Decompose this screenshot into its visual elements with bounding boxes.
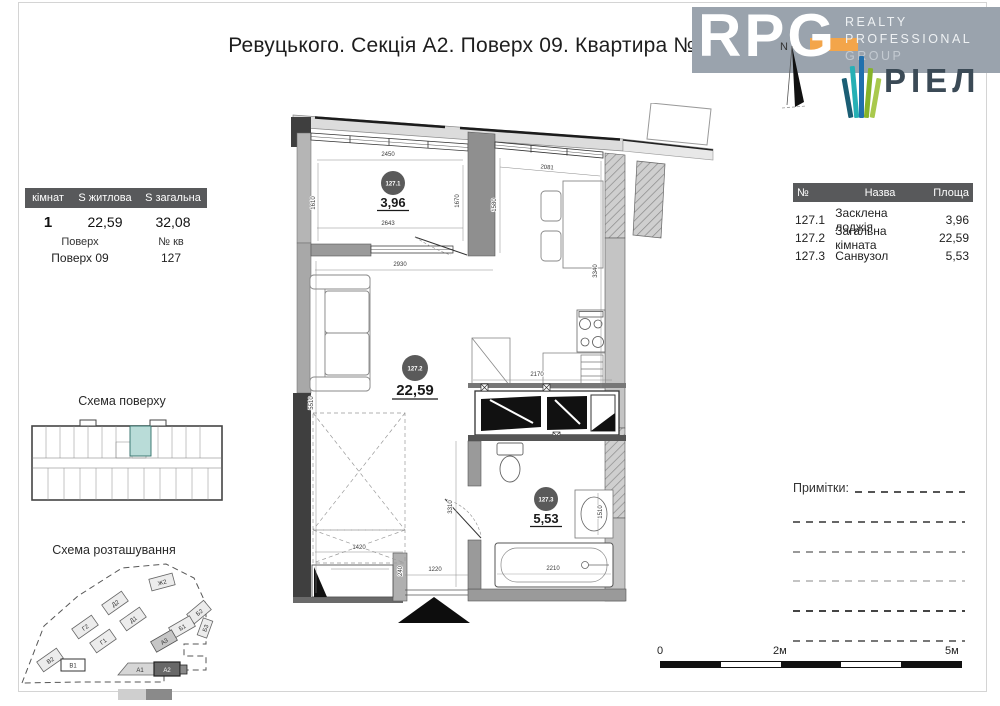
room-badge-127-1: 127.1 3,96 [377,171,409,211]
svg-text:1670: 1670 [455,194,461,208]
wardrobe-projection [313,413,405,563]
svg-text:1220: 1220 [428,567,442,573]
summary-rooms-value: 1 [25,214,71,231]
svg-text:1510: 1510 [598,505,604,519]
notes-line [793,640,965,642]
rooms-table: № Назва Площа 127.1 Засклена лоджія 3,96… [793,183,973,265]
sofa [310,275,370,391]
svg-text:3340: 3340 [593,264,599,278]
apt-number-value: 127 [135,251,207,265]
left-wall [291,117,311,601]
svg-text:1580: 1580 [492,198,498,212]
kitchen-counter [543,353,605,388]
floor-scheme-map [28,412,226,508]
floorplan-sheet: Ревуцького. Секція А2. Поверх 09. Кварти… [0,0,1000,706]
main-floor-plan: 2450 1610 1670 2643 1580 2081 2930 3340 … [285,103,717,645]
scale-label-5m: 5м [945,645,959,657]
svg-text:127.1: 127.1 [385,182,401,188]
highlighted-building-a2: А2 [154,662,187,676]
svg-text:3310: 3310 [448,500,454,514]
site-scheme-map: Ж2 Д2 Д1 Б2 Б1 Б3 Г2 Г1 А3 В2 В1 А1 А2 [14,558,216,690]
svg-text:127.2: 127.2 [407,367,423,373]
sink-icon [575,490,613,538]
entrance-arrow [398,597,470,623]
scale-bar [660,661,962,668]
summary-living-area-value: 22,59 [71,214,139,230]
room-badge-127-3: 127.3 5,53 [530,487,562,527]
legend-strip-dark [146,689,172,700]
svg-text:3,96: 3,96 [380,195,405,210]
summary-header-living-area: S житлова [71,192,139,204]
svg-text:В1: В1 [69,664,77,670]
svg-text:1610: 1610 [311,196,317,210]
notes-line [793,610,965,612]
svg-text:2081: 2081 [540,164,554,171]
svg-text:2210: 2210 [546,566,560,572]
neighbour-wall [633,161,665,238]
kitchen-cabinet [472,338,510,386]
room-badge-127-2: 127.2 22,59 [392,355,438,399]
apt-number-label: № кв [135,236,207,248]
svg-text:2643: 2643 [381,221,395,227]
pillar [468,132,495,256]
compass-n-label: N [780,41,788,53]
site-scheme-title: Схема розташування [14,543,214,557]
summary-total-area-value: 32,08 [139,214,207,230]
summary-header-rooms: кімнат [25,192,71,204]
svg-text:5,53: 5,53 [533,511,558,526]
svg-text:127.3: 127.3 [538,498,554,504]
scale-label-0: 0 [657,645,663,657]
logo-word-professional: PROFESSIONAL [845,31,972,48]
bathroom [445,441,613,589]
svg-text:А2: А2 [163,668,171,674]
table-row: 127.2 Загальна кімната 22,59 [793,229,973,247]
svg-text:А1: А1 [136,668,144,674]
floor-scheme-title: Схема поверху [22,394,222,408]
notes-line [793,580,965,582]
rooms-header-area: Площа [926,187,974,199]
loggia-divider-wall [311,237,467,256]
toilet-icon [497,443,523,482]
notes-label: Примітки: [793,481,849,495]
scale-label-2m: 2м [773,645,787,657]
table-row: 127.3 Санвузол 5,53 [793,247,973,265]
legend-strip-light [118,689,146,700]
notes-line [855,491,965,493]
north-arrow-icon: N [762,36,818,114]
builtin-wardrobe [468,383,626,441]
riel-logo-text: РІЕЛ [884,62,980,100]
floor-apartment-meta: Поверх № кв Поверх 09 127 [25,236,207,265]
svg-text:1420: 1420 [352,545,366,551]
logo-word-realty: REALTY [845,14,972,31]
highlighted-apartment-cell [130,426,151,456]
notes-line [793,551,965,553]
svg-text:2450: 2450 [381,152,395,158]
floor-label: Поверх [25,236,135,248]
svg-text:22,59: 22,59 [396,382,434,399]
bathtub-icon [495,543,613,587]
apartment-summary-table: кімнат S житлова S загальна 1 22,59 32,0… [25,188,207,236]
neighbour-balcony [647,103,711,145]
summary-header-total-area: S загальна [139,192,207,204]
notes-line [793,521,965,523]
svg-text:5510: 5510 [309,396,315,410]
svg-text:2930: 2930 [393,262,407,268]
svg-text:2170: 2170 [530,372,544,378]
page-title: Ревуцького. Секція А2. Поверх 09. Кварти… [180,34,780,58]
floor-value: Поверх 09 [25,251,135,265]
rooms-header-name: Назва [835,187,926,199]
dining-table [541,181,603,268]
riel-bars-icon [845,56,881,118]
bench [312,565,393,597]
rooms-header-no: № [793,187,835,199]
svg-text:240: 240 [398,565,404,576]
